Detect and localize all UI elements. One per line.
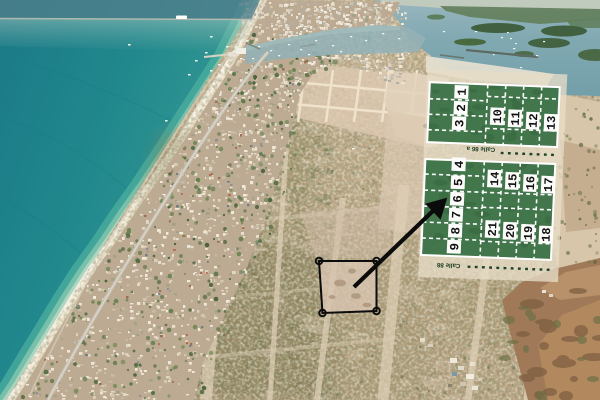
svg-text:6: 6 [451,195,465,203]
svg-text:10: 10 [491,109,506,124]
svg-text:20: 20 [504,223,519,238]
svg-text:Calle 86 a: Calle 86 a [466,145,495,153]
svg-text:14: 14 [488,171,503,186]
svg-text:Calle 88: Calle 88 [436,261,460,269]
svg-text:9: 9 [448,243,462,251]
svg-text:2: 2 [455,104,469,112]
svg-text:17: 17 [542,177,557,192]
svg-text:5: 5 [452,178,466,186]
svg-text:12: 12 [527,113,542,128]
svg-text:19: 19 [522,226,537,241]
svg-text:21: 21 [486,222,501,237]
svg-text:18: 18 [540,227,555,242]
svg-text:13: 13 [545,115,560,130]
svg-text:16: 16 [524,176,539,191]
svg-text:4: 4 [453,160,467,169]
svg-text:11: 11 [509,111,524,126]
svg-text:7: 7 [450,211,464,219]
svg-text:15: 15 [506,173,521,188]
svg-text:1: 1 [456,88,470,96]
svg-text:8: 8 [449,227,463,235]
svg-text:3: 3 [453,119,467,127]
